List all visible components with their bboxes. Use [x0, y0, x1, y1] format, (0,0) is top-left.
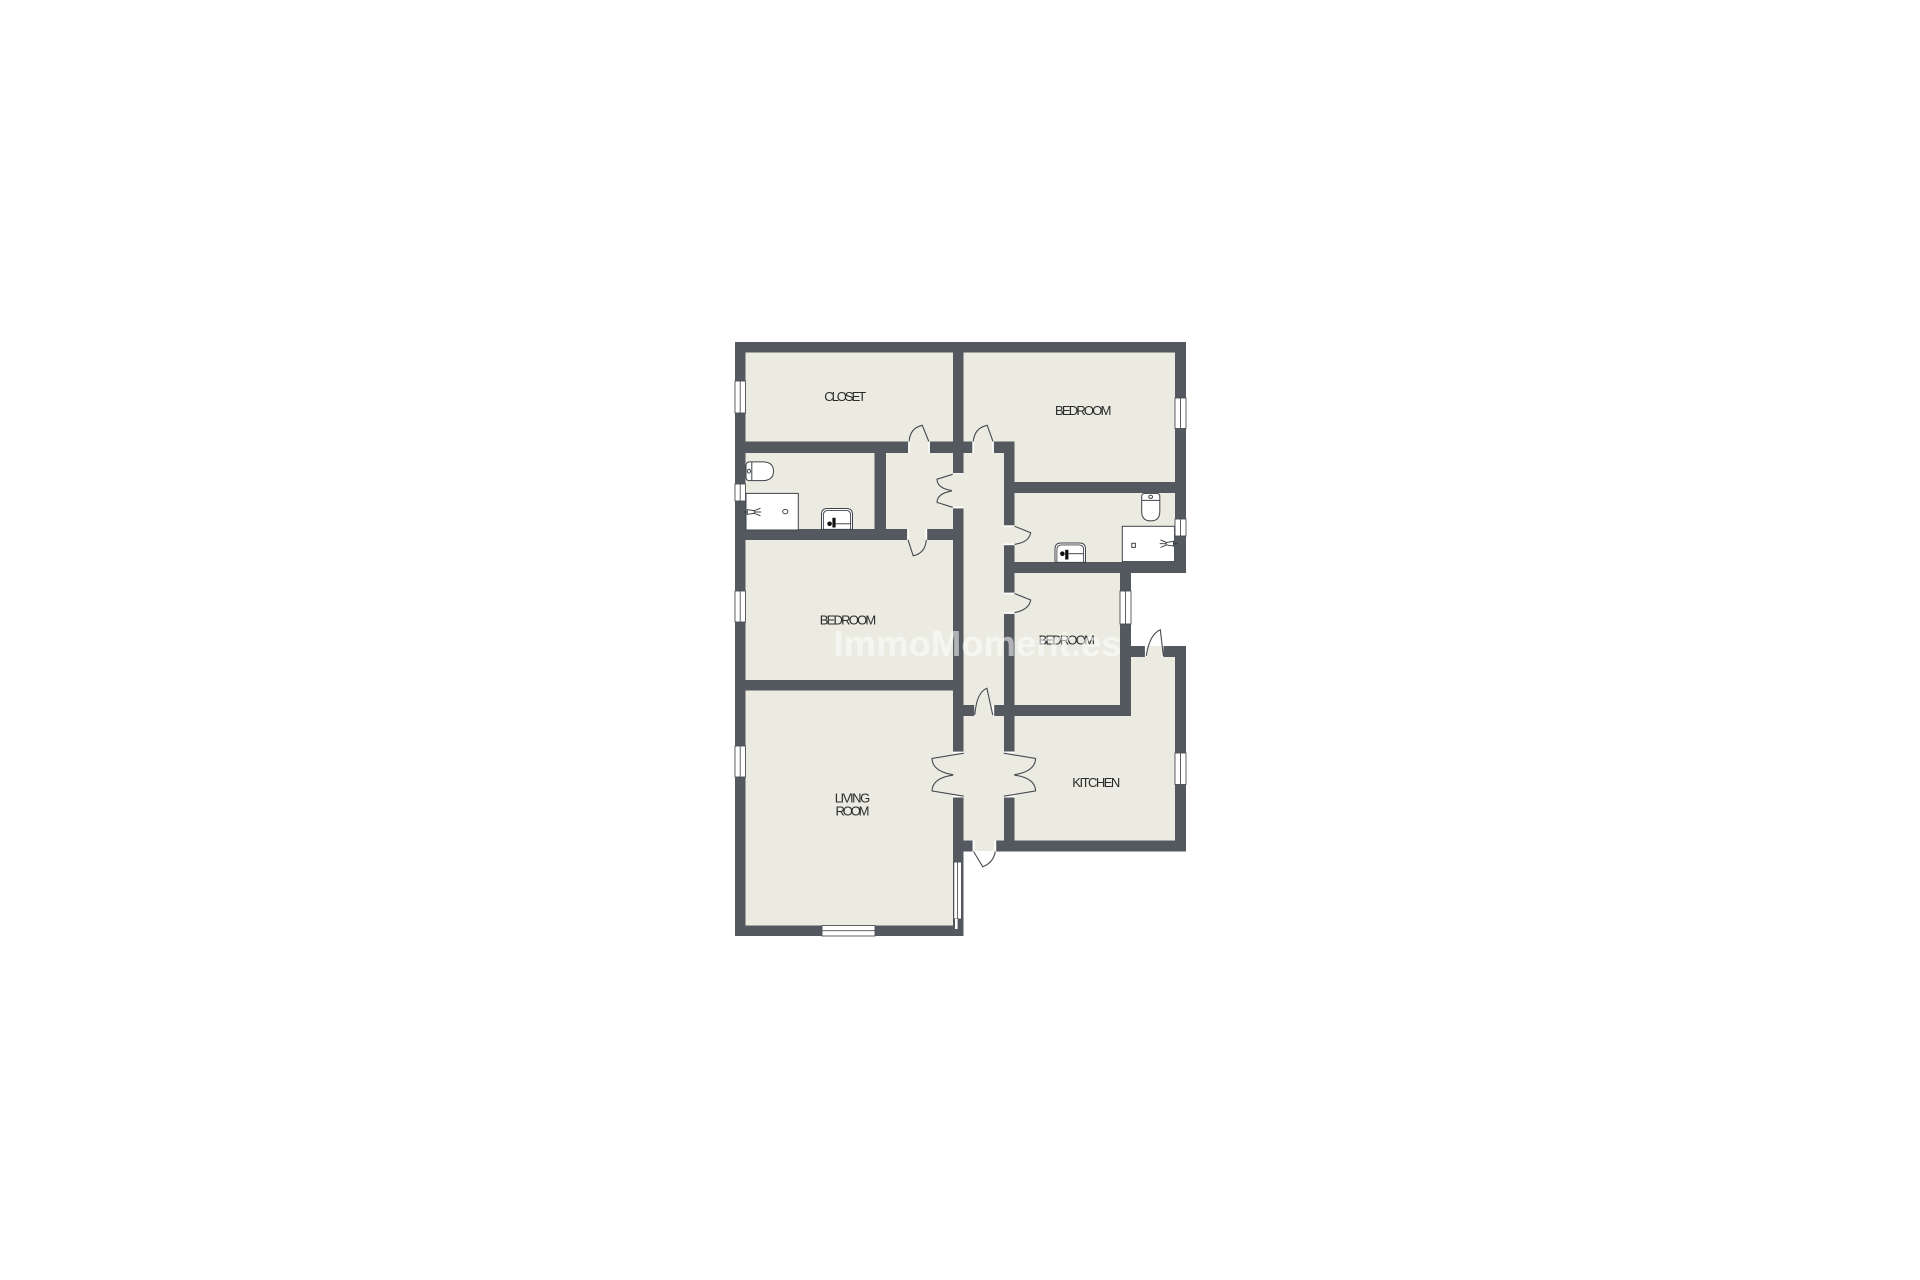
svg-text:KITCHEN: KITCHEN [1072, 775, 1120, 790]
svg-text:ROOM: ROOM [836, 804, 870, 819]
svg-text:ImmoMoment.es: ImmoMoment.es [834, 623, 1122, 664]
svg-text:BEDROOM: BEDROOM [1055, 403, 1112, 418]
svg-text:CLOSET: CLOSET [824, 389, 866, 404]
